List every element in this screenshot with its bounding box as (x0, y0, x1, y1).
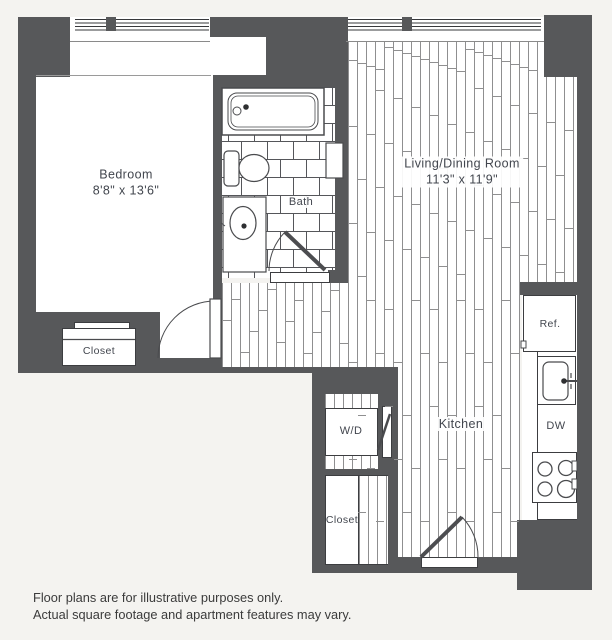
plank-joint (349, 223, 357, 224)
plank-joint (556, 272, 564, 273)
bedroom-label: Bedroom 8'8" x 13'6" (93, 168, 159, 199)
plank-joint (439, 266, 447, 267)
plank-joint (457, 468, 465, 469)
plank-joint (277, 342, 285, 343)
plank-joint (502, 61, 510, 62)
plank-joint (250, 331, 258, 332)
wall-right (577, 77, 592, 560)
wall-bottom-strip (18, 367, 312, 373)
bath-label: Bath (286, 196, 316, 208)
bedroom-dims: 8'8" x 13'6" (93, 183, 159, 199)
plank-joint (385, 143, 393, 144)
plank-joint (466, 521, 474, 522)
plank-joint (259, 310, 267, 311)
plank-joint (448, 68, 456, 69)
plank-joint (475, 52, 483, 53)
plank-joint (421, 257, 429, 258)
plank-joint (430, 213, 438, 214)
bedroom-window-mullion (106, 17, 116, 31)
bedroom-window-band (70, 17, 212, 77)
plank-joint (493, 96, 501, 97)
plank-joint (349, 459, 357, 460)
plank-joint (412, 300, 420, 301)
wall-bath-top (266, 17, 348, 75)
plank-joint (430, 406, 438, 407)
plank-joint (511, 64, 519, 65)
plank-joint (403, 512, 411, 513)
plank-joint (340, 343, 348, 344)
plank-joint (376, 353, 384, 354)
kitchen-sink-counter (537, 356, 576, 405)
bedroom-closet-label: Closet (83, 345, 115, 357)
wall-bath-door-foot (328, 270, 348, 283)
plank-joint (439, 459, 447, 460)
wd-door-jamb (382, 406, 392, 458)
plank-joint (394, 50, 402, 51)
plank-joint (349, 126, 357, 127)
plank-joint (448, 512, 456, 513)
plank-joint (403, 415, 411, 416)
plank-joint (358, 512, 366, 513)
plank-joint (385, 240, 393, 241)
disclaimer-line2: Actual square footage and apartment feat… (33, 606, 351, 623)
wall-bath-top-inner (213, 75, 348, 87)
plank-joint (349, 60, 357, 61)
plank-joint (376, 521, 384, 522)
plank-joint (394, 459, 402, 460)
bedroom-name: Bedroom (93, 168, 159, 184)
bedroom-door-bay (160, 312, 213, 358)
plank-joint (367, 66, 375, 67)
plank-joint (565, 228, 573, 229)
plank-joint (538, 264, 546, 265)
plank-joint (430, 115, 438, 116)
living-floor-upper (348, 42, 544, 77)
plank-joint (367, 232, 375, 233)
plank-joint (466, 132, 474, 133)
plank-joint (304, 353, 312, 354)
wd-louver-top (325, 394, 378, 408)
wall-bottom-right-corner (517, 520, 592, 590)
plank-joint (493, 512, 501, 513)
plank-joint (484, 459, 492, 460)
plank-joint (394, 362, 402, 363)
plank-joint (295, 300, 303, 301)
plank-joint (547, 219, 555, 220)
plank-joint (421, 59, 429, 60)
hall-closet-label: Closet (326, 514, 358, 526)
plank-joint (412, 204, 420, 205)
wall-top-mid (210, 17, 268, 37)
plank-joint (313, 332, 321, 333)
dishwasher-label: DW (546, 420, 565, 432)
plank-joint (484, 55, 492, 56)
plank-joint (376, 187, 384, 188)
plank-joint (511, 105, 519, 106)
plank-joint (268, 289, 276, 290)
plank-joint (475, 309, 483, 310)
plank-joint (457, 274, 465, 275)
plank-joint (403, 53, 411, 54)
plank-joint (493, 415, 501, 416)
plank-joint (430, 309, 438, 310)
plank-joint (439, 65, 447, 66)
plank-joint (466, 230, 474, 231)
hallway-floor (222, 283, 348, 367)
plank-joint (322, 311, 330, 312)
kitchen-label: Kitchen (436, 417, 487, 431)
plank-joint (493, 58, 501, 59)
plank-joint (484, 141, 492, 142)
wall-kitchen-step (520, 282, 577, 295)
plank-joint (376, 69, 384, 70)
plank-joint (367, 468, 375, 469)
plank-joint (511, 202, 519, 203)
plank-joint (421, 521, 429, 522)
plank-joint (538, 166, 546, 167)
plank-joint (430, 62, 438, 63)
washer-dryer-label: W/D (340, 425, 363, 437)
plank-joint (385, 309, 393, 310)
plank-joint (466, 49, 474, 50)
bath-door-threshold (270, 272, 330, 283)
wall-top-right-corner (544, 15, 592, 77)
hall-closet-floor (358, 476, 388, 564)
plank-joint (448, 415, 456, 416)
plank-joint (403, 249, 411, 250)
plank-joint (412, 468, 420, 469)
stove-box (532, 452, 577, 503)
plank-joint (565, 130, 573, 131)
bath-floor-tiles (222, 87, 335, 278)
plank-joint (367, 300, 375, 301)
plank-joint (502, 149, 510, 150)
plank-joint (448, 221, 456, 222)
plank-joint (466, 353, 474, 354)
refrigerator-label: Ref. (540, 318, 561, 330)
plank-joint (223, 320, 231, 321)
plank-joint (358, 63, 366, 64)
living-window-mullion (402, 17, 412, 31)
plank-joint (358, 276, 366, 277)
plank-joint (412, 107, 420, 108)
plank-joint (232, 299, 240, 300)
plank-joint (502, 300, 510, 301)
plank-joint (286, 321, 294, 322)
plank-joint (484, 238, 492, 239)
plank-joint (349, 362, 357, 363)
plank-joint (241, 352, 249, 353)
bedroom-top-setback (212, 37, 266, 75)
plank-joint (358, 415, 366, 416)
plank-joint (529, 211, 537, 212)
plank-joint (547, 122, 555, 123)
plank-joint (457, 300, 465, 301)
plank-joint (439, 362, 447, 363)
plank-joint (457, 71, 465, 72)
plank-joint (385, 47, 393, 48)
living-label: Living/Dining Room 11'3" x 11'9" (401, 157, 523, 188)
wall-top-left-corner (18, 17, 70, 77)
wall-bath-living-divider (335, 87, 348, 278)
plank-joint (385, 406, 393, 407)
plank-joint (484, 362, 492, 363)
plank-joint (367, 134, 375, 135)
plank-joint (376, 90, 384, 91)
plank-joint (358, 179, 366, 180)
living-dims: 11'3" x 11'9" (401, 172, 523, 188)
plank-joint (556, 175, 564, 176)
plank-joint (529, 70, 537, 71)
plank-joint (520, 67, 528, 68)
plank-joint (394, 98, 402, 99)
plank-joint (502, 468, 510, 469)
living-window-sill (346, 30, 544, 42)
plank-joint (448, 124, 456, 125)
entry-door-threshold (421, 557, 478, 568)
plank-joint (529, 113, 537, 114)
plank-joint (421, 353, 429, 354)
plank-joint (403, 151, 411, 152)
disclaimer-text: Floor plans are for illustrative purpose… (33, 589, 351, 623)
plank-joint (412, 56, 420, 57)
plank-joint (502, 247, 510, 248)
plank-joint (331, 290, 339, 291)
plank-joint (511, 353, 519, 354)
plank-joint (475, 406, 483, 407)
floor-plan: Bedroom 8'8" x 13'6" Living/Dining Room … (0, 0, 612, 640)
plank-joint (475, 88, 483, 89)
disclaimer-line1: Floor plans are for illustrative purpose… (33, 589, 351, 606)
plank-joint (493, 194, 501, 195)
wall-bedroom-bath-divider (213, 77, 222, 367)
plank-joint (520, 255, 528, 256)
living-name: Living/Dining Room (401, 157, 523, 173)
plank-joint (511, 521, 519, 522)
plank-joint (394, 196, 402, 197)
